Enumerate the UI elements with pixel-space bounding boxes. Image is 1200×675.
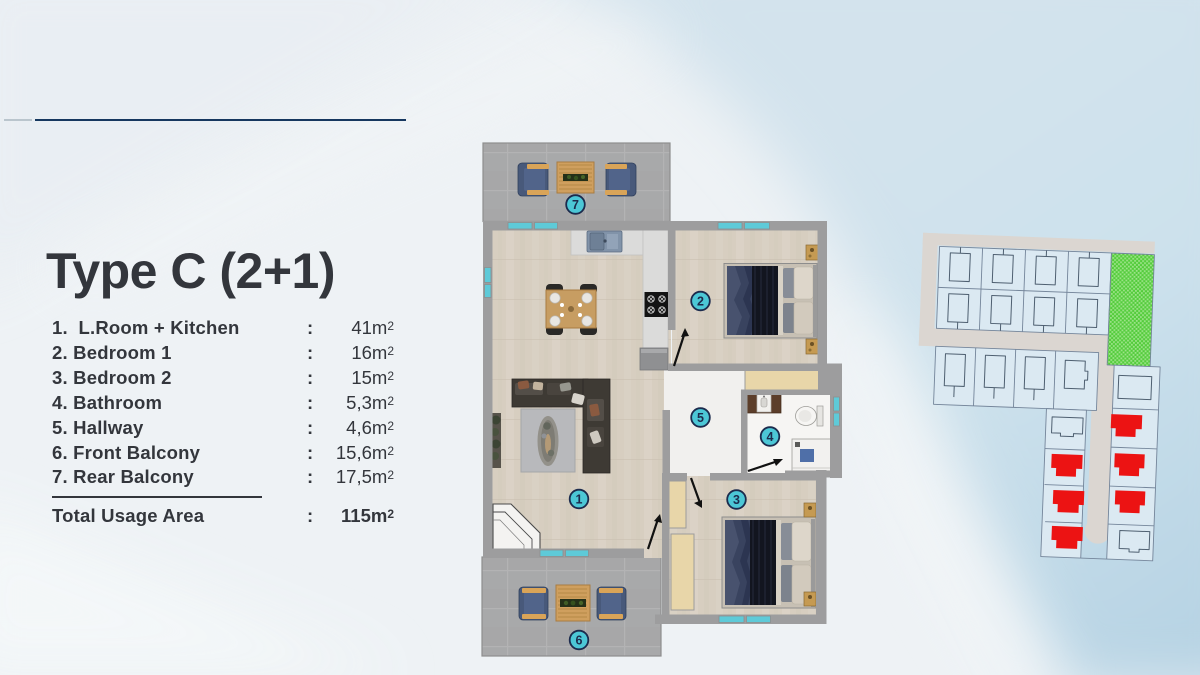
svg-text:5: 5 [697, 411, 704, 425]
svg-text:6: 6 [576, 634, 583, 648]
svg-text:3: 3 [733, 493, 740, 507]
svg-text:4: 4 [767, 430, 774, 444]
svg-text:7: 7 [572, 198, 579, 212]
svg-text:2: 2 [697, 295, 704, 309]
svg-text:1: 1 [576, 493, 583, 507]
